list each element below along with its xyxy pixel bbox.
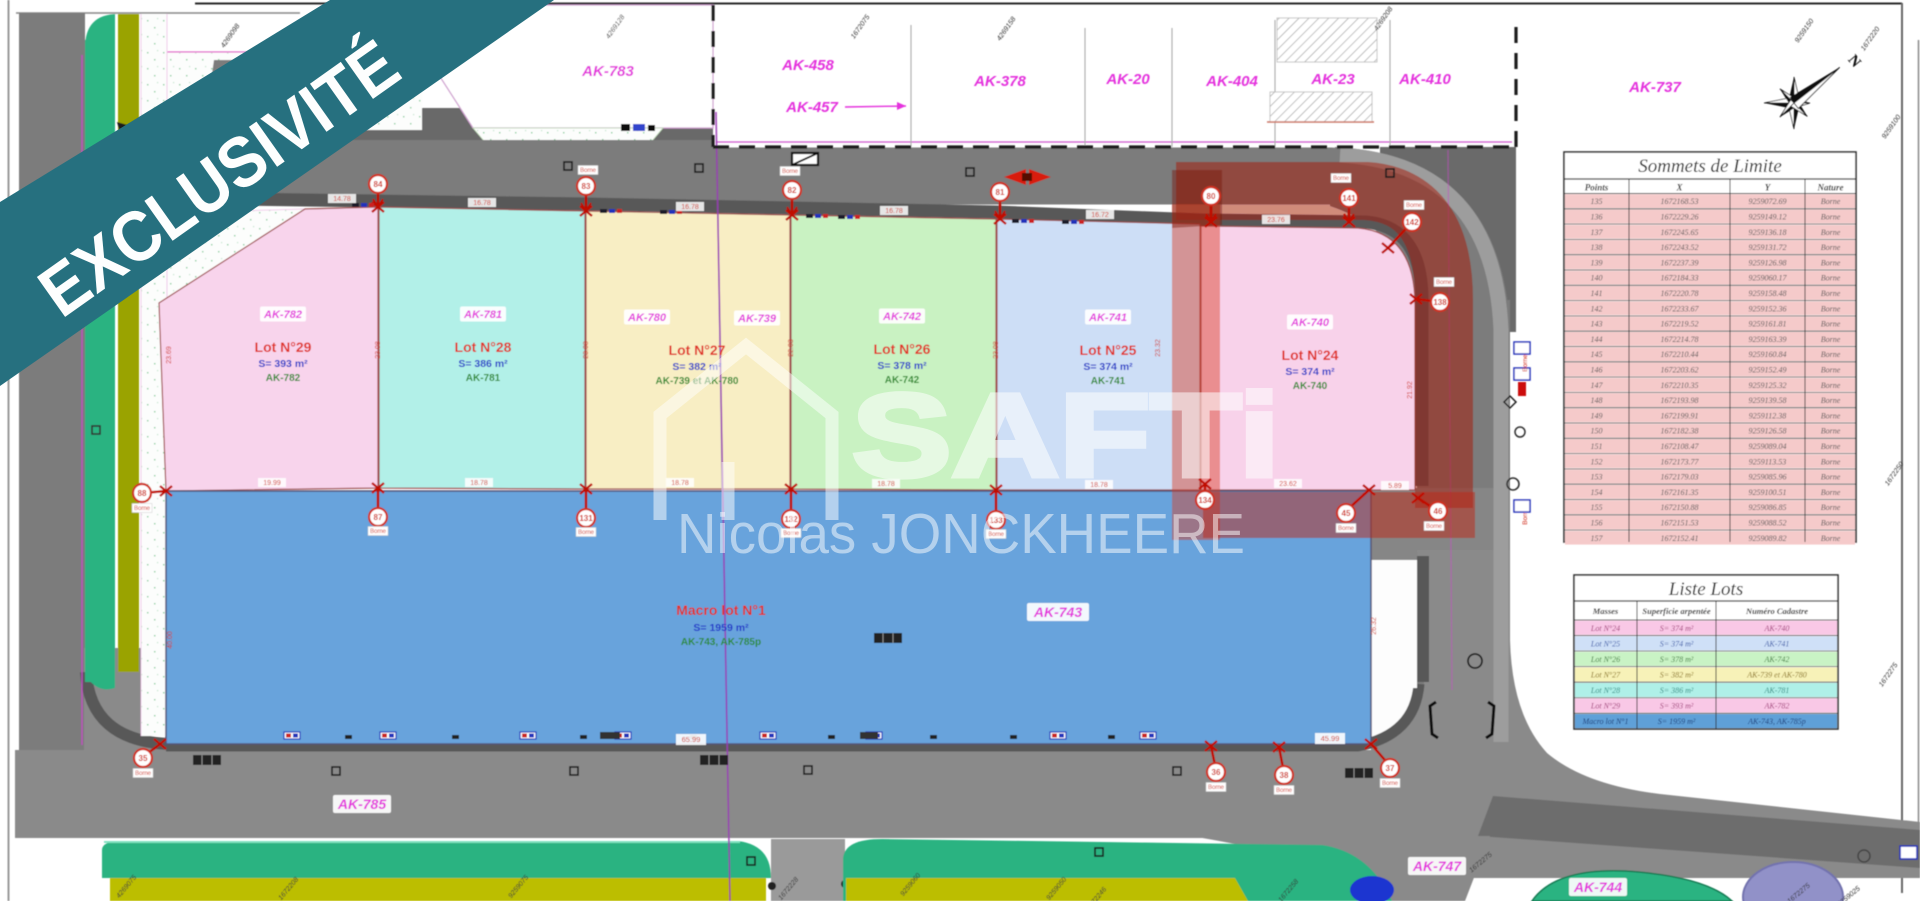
svg-text:9259160.84: 9259160.84 [1749,350,1787,359]
svg-text:36: 36 [1212,768,1221,777]
svg-text:1672182.38: 1672182.38 [1661,427,1699,436]
svg-text:Points: Points [1585,183,1609,193]
svg-text:18.78: 18.78 [470,480,488,487]
svg-text:Numéro Cadastre: Numéro Cadastre [1745,606,1808,616]
svg-text:16.78: 16.78 [473,200,491,207]
svg-text:142: 142 [1405,218,1419,227]
svg-text:135: 135 [1591,197,1603,206]
svg-text:X: X [1675,183,1683,193]
svg-text:152: 152 [1591,457,1603,466]
svg-text:AK-785: AK-785 [337,796,386,812]
svg-text:Borne: Borne [1821,212,1841,221]
svg-text:26.32: 26.32 [1371,617,1378,635]
svg-text:AK-744: AK-744 [1573,879,1622,895]
svg-text:1672220.78: 1672220.78 [1661,289,1699,298]
svg-text:AK-781: AK-781 [463,309,502,321]
svg-text:9259086.85: 9259086.85 [1749,503,1787,512]
svg-text:9259100.51: 9259100.51 [1749,488,1787,497]
svg-text:83: 83 [582,182,591,191]
svg-text:35: 35 [139,754,148,763]
svg-text:156: 156 [1591,518,1603,527]
svg-text:1672210.44: 1672210.44 [1661,350,1699,359]
svg-text:22.03: 22.03 [788,339,795,357]
svg-text:40.00: 40.00 [167,631,174,649]
svg-text:65.99: 65.99 [682,735,701,744]
svg-text:Lot N°29: Lot N°29 [255,339,312,355]
svg-text:AK-743, AK-785p: AK-743, AK-785p [1747,717,1806,726]
svg-text:AK-783: AK-783 [581,63,634,80]
svg-text:45.99: 45.99 [1321,734,1340,743]
svg-text:1672203.62: 1672203.62 [1661,365,1699,374]
svg-text:Superficie arpentée: Superficie arpentée [1642,606,1710,616]
svg-text:AK-740: AK-740 [1290,317,1330,329]
svg-text:9259161.81: 9259161.81 [1749,320,1787,329]
svg-text:23.62: 23.62 [1279,481,1297,488]
svg-text:Borne: Borne [1821,427,1841,436]
svg-text:146: 146 [1591,365,1603,374]
svg-text:147: 147 [1591,381,1604,390]
svg-text:Borne: Borne [578,530,595,536]
svg-text:1672179.03: 1672179.03 [1661,473,1699,482]
svg-text:Borne: Borne [1821,488,1841,497]
svg-text:S= 393 m²: S= 393 m² [258,358,308,370]
svg-text:1672210.35: 1672210.35 [1661,381,1699,390]
svg-text:9259152.36: 9259152.36 [1749,304,1787,313]
svg-text:1672161.35: 1672161.35 [1661,488,1699,497]
svg-text:Borne: Borne [1208,785,1225,791]
svg-text:S= 1959 m²: S= 1959 m² [693,622,749,634]
svg-text:AK-741: AK-741 [1088,312,1127,324]
svg-text:16.78: 16.78 [885,208,903,215]
svg-text:Borne: Borne [1276,788,1293,794]
svg-text:137: 137 [1591,228,1604,237]
svg-text:Borne: Borne [1821,503,1841,512]
svg-text:9259089.82: 9259089.82 [1749,534,1787,543]
svg-text:136: 136 [1591,212,1603,221]
svg-text:Borne: Borne [1821,350,1841,359]
svg-text:Lot N°28: Lot N°28 [455,339,512,355]
svg-text:1672229.26: 1672229.26 [1661,212,1699,221]
svg-text:Borne: Borne [1821,396,1841,405]
svg-text:5.89: 5.89 [1388,483,1402,490]
svg-text:23.08: 23.08 [375,341,382,359]
svg-text:Borne: Borne [1821,381,1841,390]
svg-text:AK-378: AK-378 [973,73,1026,90]
svg-text:Borne: Borne [1821,473,1841,482]
svg-text:9259158.48: 9259158.48 [1749,289,1787,298]
svg-text:38: 38 [1280,771,1289,780]
svg-text:Borne: Borne [1821,274,1841,283]
svg-text:AK-781: AK-781 [1764,686,1790,695]
svg-text:157: 157 [1591,534,1604,543]
svg-text:145: 145 [1591,350,1603,359]
svg-text:Borne: Borne [370,529,387,535]
svg-text:1672168.53: 1672168.53 [1661,197,1699,206]
svg-text:45: 45 [1342,509,1351,518]
svg-text:AK-457: AK-457 [785,99,838,116]
svg-text:82: 82 [788,186,797,195]
svg-text:37: 37 [1386,764,1395,773]
svg-text:Borne: Borne [1821,365,1841,374]
svg-text:Borne: Borne [1821,518,1841,527]
svg-text:9259139.58: 9259139.58 [1749,396,1787,405]
svg-text:Masses: Masses [1592,606,1619,616]
svg-text:1672199.91: 1672199.91 [1661,411,1699,420]
svg-text:143: 143 [1591,320,1603,329]
svg-text:1672184.33: 1672184.33 [1661,274,1699,283]
svg-text:153: 153 [1591,473,1603,482]
svg-text:AK-743: AK-743 [1033,604,1082,620]
svg-text:S= 374 m²: S= 374 m² [1285,366,1335,378]
svg-text:Sommets de Limite: Sommets de Limite [1638,156,1782,177]
svg-text:Borne: Borne [1522,354,1529,372]
svg-text:1672193.98: 1672193.98 [1661,396,1699,405]
svg-text:16.72: 16.72 [1091,212,1109,219]
svg-text:9259060.17: 9259060.17 [1749,274,1788,283]
svg-text:Liste Lots: Liste Lots [1668,579,1743,600]
svg-text:AK-781: AK-781 [466,373,501,384]
svg-text:1672237.39: 1672237.39 [1661,258,1699,267]
svg-text:Lot N°25: Lot N°25 [1590,639,1620,648]
svg-text:14.78: 14.78 [333,196,351,203]
svg-text:23.08: 23.08 [583,341,590,359]
svg-text:9259152.49: 9259152.49 [1749,365,1787,374]
svg-text:151: 151 [1591,442,1603,451]
svg-text:9259089.04: 9259089.04 [1749,442,1787,451]
svg-text:AK-742: AK-742 [1764,655,1790,664]
svg-text:Lot N°25: Lot N°25 [1080,342,1137,358]
svg-text:144: 144 [1591,335,1603,344]
svg-text:1672173.77: 1672173.77 [1661,457,1700,466]
svg-text:Macro lot N°1: Macro lot N°1 [676,602,766,618]
svg-text:Borne: Borne [1821,320,1841,329]
svg-text:Lot N°24: Lot N°24 [1282,347,1339,363]
svg-text:S= 382 m²: S= 382 m² [1660,670,1694,679]
svg-text:140: 140 [1591,274,1603,283]
svg-text:S= 386 m²: S= 386 m² [458,358,508,370]
svg-text:Lot N°24: Lot N°24 [1590,624,1620,633]
svg-text:141: 141 [1591,289,1603,298]
svg-text:AK-782: AK-782 [266,373,301,384]
svg-text:Borne: Borne [1338,526,1355,532]
svg-text:9259112.38: 9259112.38 [1749,411,1786,420]
svg-text:AK-410: AK-410 [1398,71,1451,88]
svg-text:88: 88 [138,489,147,498]
svg-text:23.32: 23.32 [1155,339,1162,357]
svg-text:9259072.69: 9259072.69 [1749,197,1787,206]
svg-text:9259125.32: 9259125.32 [1749,381,1787,390]
svg-text:Borne: Borne [1821,228,1841,237]
svg-text:AK-404: AK-404 [1205,73,1258,90]
svg-text:138: 138 [1591,243,1603,252]
svg-text:S= 386 m²: S= 386 m² [1660,686,1694,695]
svg-text:AK-743, AK-785p: AK-743, AK-785p [681,637,761,648]
svg-text:AK-23: AK-23 [1310,71,1355,88]
svg-text:Nature: Nature [1816,183,1843,193]
svg-text:Lot N°27: Lot N°27 [669,342,726,358]
svg-text:AK-740: AK-740 [1293,381,1328,392]
svg-text:154: 154 [1591,488,1603,497]
svg-text:1672214.78: 1672214.78 [1661,335,1699,344]
svg-text:AK-739: AK-739 [737,313,777,325]
svg-text:142: 142 [1591,304,1603,313]
svg-text:9259085.96: 9259085.96 [1749,473,1787,482]
svg-text:138: 138 [1433,298,1447,307]
svg-text:S= 374 m²: S= 374 m² [1660,639,1694,648]
svg-text:16.78: 16.78 [681,204,699,211]
svg-text:155: 155 [1591,503,1603,512]
svg-text:23.69: 23.69 [166,346,173,364]
svg-text:141: 141 [1342,194,1356,203]
svg-text:Borne: Borne [1426,524,1443,530]
svg-text:AK-739 et AK-780: AK-739 et AK-780 [1746,670,1806,679]
svg-text:S= 378 m²: S= 378 m² [1660,655,1694,664]
svg-text:AK-780: AK-780 [627,312,667,324]
svg-text:Lot N°26: Lot N°26 [874,341,931,357]
svg-text:1672243.52: 1672243.52 [1661,243,1699,252]
svg-text:S= 374 m²: S= 374 m² [1660,624,1694,633]
svg-text:Borne: Borne [135,771,152,777]
svg-text:149: 149 [1591,411,1603,420]
svg-text:AK-737: AK-737 [1628,79,1681,96]
svg-text:Borne: Borne [1821,304,1841,313]
svg-text:131: 131 [579,514,593,523]
svg-text:18.78: 18.78 [671,480,689,487]
svg-text:Lot N°29: Lot N°29 [1590,702,1620,711]
svg-text:S= 393 m²: S= 393 m² [1660,702,1694,711]
svg-text:AK-741: AK-741 [1764,639,1790,648]
svg-text:Borne: Borne [782,169,799,175]
svg-text:139: 139 [1591,258,1603,267]
svg-text:9259126.98: 9259126.98 [1749,258,1787,267]
svg-text:AK-782: AK-782 [263,309,302,321]
svg-text:Macro lot N°1: Macro lot N°1 [1581,717,1628,726]
svg-text:Borne: Borne [1406,203,1423,209]
svg-text:1672108.47: 1672108.47 [1661,442,1700,451]
svg-text:AK-782: AK-782 [1764,702,1790,711]
svg-text:9259131.72: 9259131.72 [1749,243,1787,252]
svg-text:1672245.65: 1672245.65 [1661,228,1699,237]
svg-text:Borne: Borne [1821,243,1841,252]
svg-text:23.08: 23.08 [993,341,1000,359]
svg-text:1672150.88: 1672150.88 [1661,503,1699,512]
svg-text:AK-742: AK-742 [882,311,921,323]
svg-text:150: 150 [1591,427,1603,436]
svg-text:SAFTi: SAFTi [852,370,1280,502]
svg-text:87: 87 [374,513,383,522]
svg-text:Lot N°27: Lot N°27 [1590,670,1621,679]
svg-text:Borne: Borne [1821,289,1841,298]
svg-text:1672152.41: 1672152.41 [1661,534,1699,543]
svg-text:AK-740: AK-740 [1764,624,1790,633]
svg-text:Borne: Borne [580,168,597,174]
svg-text:Borne: Borne [1821,197,1841,206]
svg-text:9259126.58: 9259126.58 [1749,427,1787,436]
svg-text:1672233.67: 1672233.67 [1661,304,1700,313]
svg-text:9259163.39: 9259163.39 [1749,335,1787,344]
svg-text:AK-20: AK-20 [1105,71,1150,88]
svg-text:21.92: 21.92 [1407,381,1414,399]
svg-text:81: 81 [996,188,1005,197]
svg-text:9259088.52: 9259088.52 [1749,518,1787,527]
svg-text:Borne: Borne [1821,534,1841,543]
svg-text:Borne: Borne [1821,258,1841,267]
svg-text:Borne: Borne [134,506,151,512]
svg-text:Borne: Borne [1821,457,1841,466]
svg-text:Lot N°28: Lot N°28 [1590,686,1620,695]
svg-text:Nicolas JONCKHEERE: Nicolas JONCKHEERE [677,502,1245,566]
svg-text:84: 84 [374,180,383,189]
svg-text:23.76: 23.76 [1267,217,1285,224]
svg-text:1672151.53: 1672151.53 [1661,518,1699,527]
svg-text:AK-747: AK-747 [1412,858,1462,874]
svg-text:1672219.52: 1672219.52 [1661,320,1699,329]
svg-text:Lot N°26: Lot N°26 [1590,655,1620,664]
svg-text:19.99: 19.99 [263,480,281,487]
svg-text:9259136.18: 9259136.18 [1749,228,1787,237]
svg-text:46: 46 [1434,507,1443,516]
svg-text:Borne: Borne [1821,335,1841,344]
svg-text:S= 1959 m²: S= 1959 m² [1658,717,1696,726]
svg-text:9259113.53: 9259113.53 [1749,457,1786,466]
svg-text:Borne: Borne [1821,411,1841,420]
svg-text:Borne: Borne [1382,781,1399,787]
svg-text:9259149.12: 9259149.12 [1749,212,1787,221]
svg-text:Borne: Borne [1821,442,1841,451]
svg-text:Borne: Borne [1436,280,1453,286]
svg-text:148: 148 [1591,396,1603,405]
svg-text:80: 80 [1207,192,1216,201]
svg-text:Borne: Borne [1333,176,1350,182]
svg-text:AK-458: AK-458 [781,57,834,74]
